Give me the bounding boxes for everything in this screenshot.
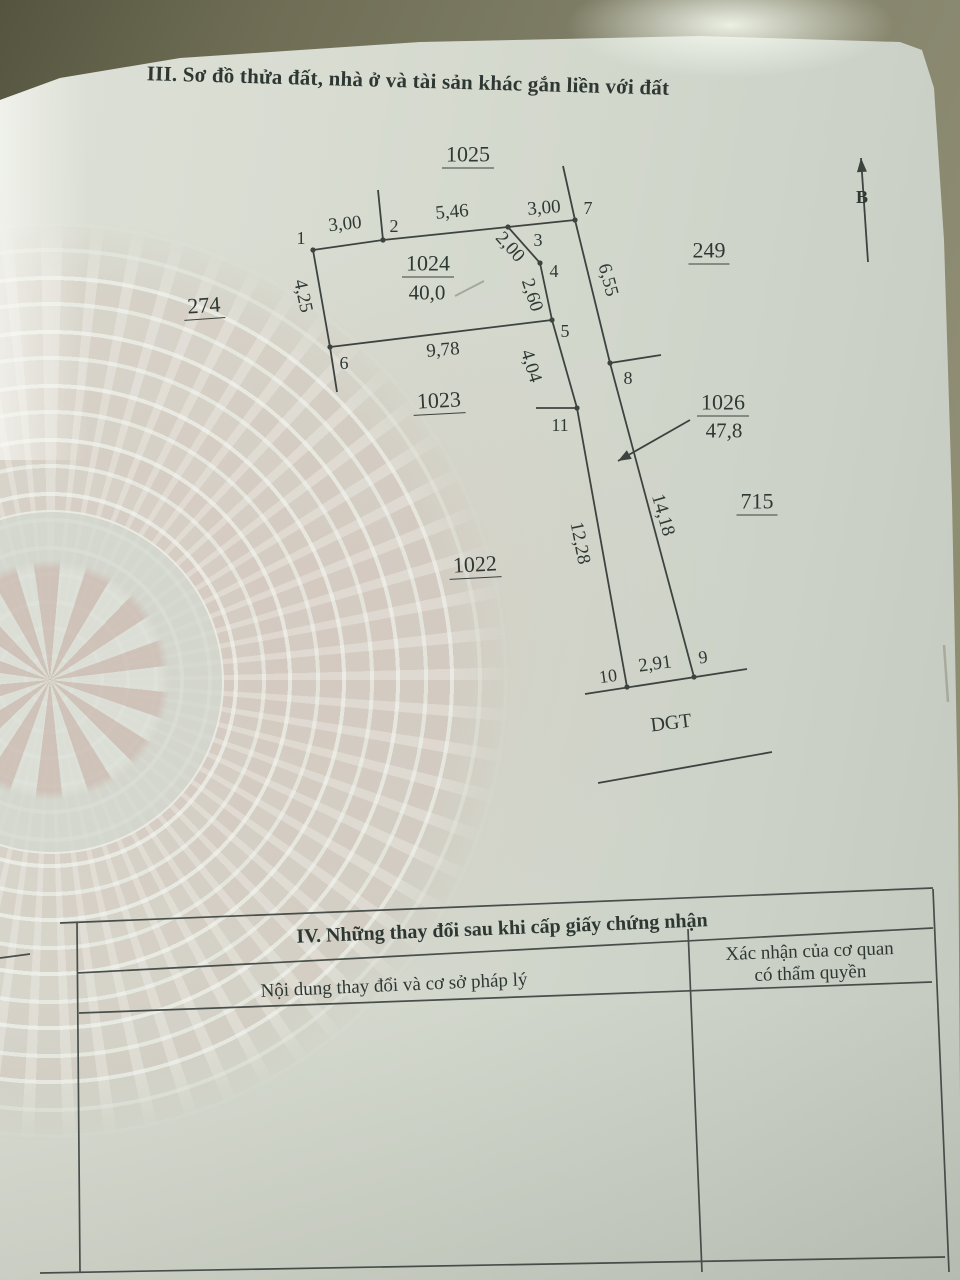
stray-marks [455, 281, 948, 702]
vertex-dot [380, 237, 385, 242]
parcel-area-1026: 47,8 [706, 421, 743, 442]
arrowhead [618, 450, 632, 461]
vertex-label-4: 4 [550, 262, 559, 280]
vertex-dot [574, 405, 579, 410]
vertex-dot [310, 247, 315, 252]
road-label-dgt: DGT [649, 711, 692, 736]
boundary-line [378, 190, 383, 240]
boundary-line [330, 347, 337, 392]
vertex-dot [549, 317, 554, 322]
boundary-line [861, 158, 868, 262]
boundary-line [313, 250, 330, 347]
vertex-label-5: 5 [561, 322, 570, 340]
vertex-label-11: 11 [551, 416, 568, 434]
vertex-dot [327, 344, 332, 349]
vertex-label-7: 7 [584, 199, 593, 217]
vertex-dot [691, 674, 696, 679]
vertex-label-8: 8 [624, 369, 633, 387]
vertex-dot [537, 260, 542, 265]
parcel-label-274: 274 [183, 293, 226, 321]
measure-6-5: 9,78 [426, 339, 461, 361]
measure-1-2: 3,00 [327, 213, 362, 235]
boundary-line [563, 166, 575, 220]
vertex-label-6: 6 [340, 354, 349, 372]
parcel-label-1025: 1025 [442, 144, 494, 169]
parcel-label-249: 249 [689, 240, 730, 265]
vertex-dot [607, 360, 612, 365]
vertex-dot [624, 684, 629, 689]
boundary-line [610, 363, 694, 677]
boundary-line [313, 240, 383, 250]
vertex-label-2: 2 [390, 217, 399, 235]
vertex-label-10: 10 [598, 666, 618, 686]
parcel-label-1023: 1023 [412, 388, 465, 416]
parcel-area-1024: 40,0 [409, 283, 446, 304]
parcel-label-1026: 1026 [697, 392, 749, 417]
boundary-line [383, 227, 508, 240]
arrowhead [857, 158, 867, 172]
cadastral-diagram [0, 0, 960, 1280]
boundary-line [598, 752, 772, 783]
vertex-label-1: 1 [297, 229, 306, 247]
photographed-land-certificate-page: III. Sơ đồ thửa đất, nhà ở và tài sản kh… [0, 0, 960, 1280]
parcel-boundary-lines [310, 158, 868, 783]
vertex-dot [572, 217, 577, 222]
vertex-label-3: 3 [534, 231, 543, 249]
parcel-label-1024: 1024 [402, 253, 454, 278]
measure-10-9: 2,91 [637, 652, 673, 675]
measure-3-7: 3,00 [527, 197, 562, 219]
section-iv-right-column-header: Xác nhận của cơ quan có thẩm quyền [725, 938, 895, 988]
parcel-label-715: 715 [737, 491, 778, 516]
north-label: B [856, 188, 868, 206]
parcel-label-1022: 1022 [448, 552, 501, 580]
measure-2-3: 5,46 [435, 201, 470, 223]
boundary-line [508, 220, 575, 227]
boundary-line [610, 355, 661, 363]
